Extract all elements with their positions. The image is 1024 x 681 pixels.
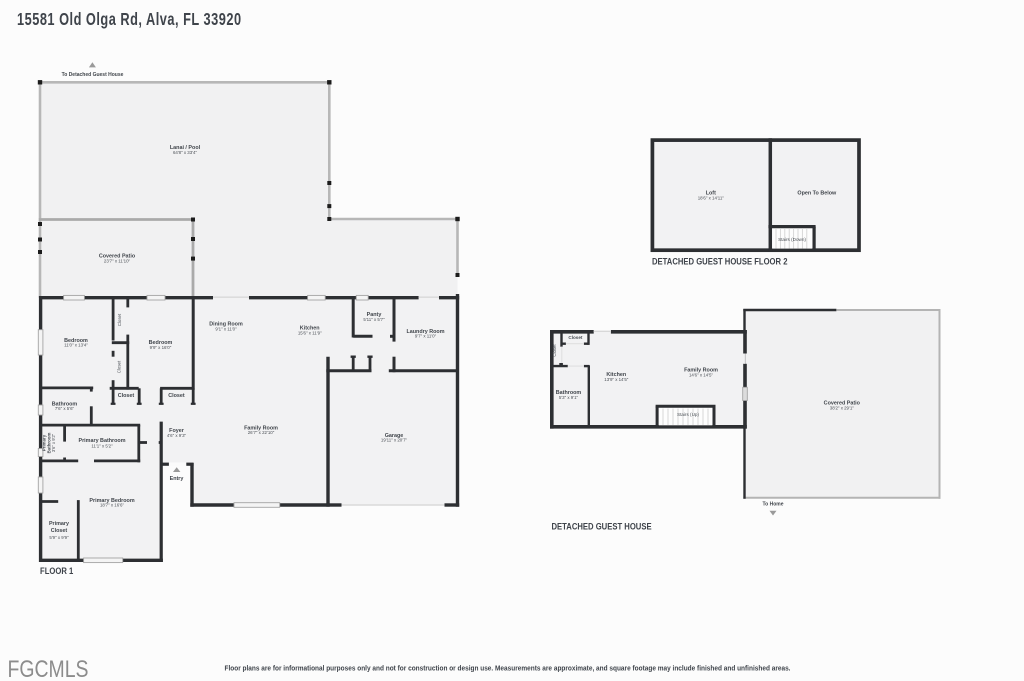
svg-text:To Home: To Home [762, 502, 783, 508]
svg-text:Closet: Closet [117, 313, 122, 326]
svg-text:18'6" x 14'11": 18'6" x 14'11" [698, 196, 725, 201]
svg-text:To Detached Guest House: To Detached Guest House [62, 72, 124, 78]
svg-text:23'7" x 11'10": 23'7" x 11'10" [104, 259, 131, 264]
svg-text:Stairs (Down): Stairs (Down) [778, 237, 806, 242]
svg-text:Closet: Closet [552, 344, 557, 357]
svg-text:9'7" x 11'0": 9'7" x 11'0" [415, 334, 437, 339]
svg-text:11'1" x 5'2": 11'1" x 5'2" [91, 443, 113, 448]
svg-text:15'6" x 11'9": 15'6" x 11'9" [298, 331, 322, 336]
svg-text:26'7" x 22'10": 26'7" x 22'10" [248, 430, 275, 435]
svg-text:9'9" x 16'0": 9'9" x 16'0" [150, 345, 172, 350]
svg-text:5'11" x 5'7": 5'11" x 5'7" [363, 317, 385, 322]
svg-text:Open To Below: Open To Below [797, 190, 837, 196]
svg-text:11'0" x 13'4": 11'0" x 13'4" [64, 343, 88, 348]
svg-text:Floor plans are for informatio: Floor plans are for informational purpos… [225, 666, 791, 673]
svg-text:FLOOR 1: FLOOR 1 [40, 565, 73, 576]
svg-text:Closet: Closet [118, 393, 135, 399]
svg-text:DETACHED GUEST HOUSE: DETACHED GUEST HOUSE [552, 521, 652, 532]
svg-text:15581 Old Olga Rd, Alva, FL 33: 15581 Old Olga Rd, Alva, FL 33920 [17, 10, 241, 29]
svg-text:Entry: Entry [170, 476, 184, 482]
svg-text:DETACHED GUEST HOUSE FLOOR 2: DETACHED GUEST HOUSE FLOOR 2 [652, 256, 788, 267]
svg-text:7'6" x 5'6": 7'6" x 5'6" [55, 406, 75, 411]
svg-text:Stairs (Up): Stairs (Up) [677, 412, 699, 417]
svg-text:18'7" x 16'6": 18'7" x 16'6" [100, 503, 125, 508]
svg-text:Primary: Primary [49, 521, 69, 527]
svg-text:Closet: Closet [568, 335, 583, 340]
svg-text:13'9" x 14'5": 13'9" x 14'5" [604, 377, 629, 382]
svg-text:FGCMLS: FGCMLS [8, 656, 89, 681]
svg-text:Closet: Closet [51, 528, 68, 534]
svg-text:5'9" x 9'9": 5'9" x 9'9" [49, 535, 69, 540]
svg-text:3'6" x 9'2": 3'6" x 9'2" [51, 433, 56, 452]
svg-text:Closet: Closet [168, 393, 185, 399]
svg-text:14'6" x 14'5": 14'6" x 14'5" [689, 373, 714, 378]
svg-text:38'2" x 29'1": 38'2" x 29'1" [830, 405, 855, 410]
svg-text:4'6" x 9'3": 4'6" x 9'3" [167, 433, 187, 438]
svg-text:9'1" x 11'0": 9'1" x 11'0" [215, 326, 237, 331]
svg-text:19'11" x 20'7": 19'11" x 20'7" [381, 438, 408, 443]
svg-text:64'8" x 33'4": 64'8" x 33'4" [173, 150, 198, 155]
svg-text:Closet: Closet [117, 360, 122, 373]
svg-text:5'3" x 9'1": 5'3" x 9'1" [559, 395, 579, 400]
